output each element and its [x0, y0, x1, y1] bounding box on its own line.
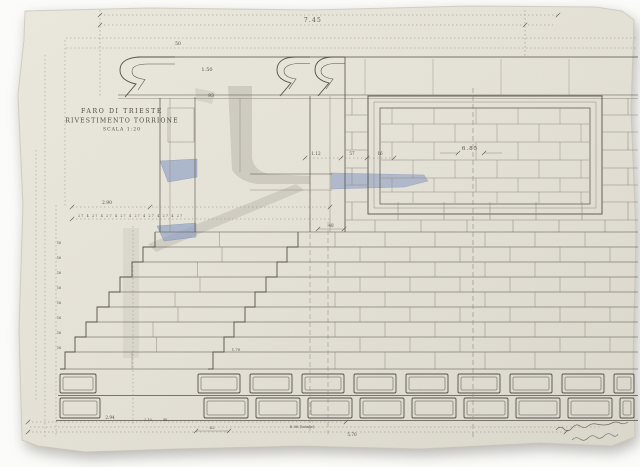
- riser-dim-label: 16: [57, 331, 61, 335]
- dim-step-mid: 1.70: [232, 347, 241, 352]
- dim-total-2: 5.70: [347, 432, 357, 437]
- title-line-3: SCALA 1:20: [103, 127, 141, 133]
- dim-base-c: 48: [163, 418, 167, 422]
- drawing-svg: FARO DI TRIESTE RIVESTIMENTO TORRIONE SC…: [0, 0, 640, 467]
- dim-top-width: 7.45: [304, 17, 322, 24]
- dim-panel-width: 6.85: [462, 146, 478, 152]
- title-line-1: FARO DI TRIESTE: [81, 108, 163, 115]
- dim-shaft: 93: [208, 93, 214, 99]
- dim-ledge-c: 16: [377, 151, 383, 156]
- dim-steps-top: 2.90: [102, 200, 112, 206]
- grey-wash-edge: [123, 228, 139, 358]
- dim-cap-small: 50: [175, 41, 181, 47]
- dim-ledge-b: 57: [349, 151, 355, 156]
- title-line-2: RIVESTIMENTO TORRIONE: [65, 118, 178, 125]
- riser-dim-label: 16: [57, 241, 61, 245]
- dim-cap: 1.50: [201, 67, 212, 73]
- dim-total: 8.96 (totale): [290, 424, 315, 429]
- dim-ledge-a: 1.12: [311, 151, 321, 156]
- riser-dim-label: 16: [57, 271, 61, 275]
- scanned-drawing-page: FARO DI TRIESTE RIVESTIMENTO TORRIONE SC…: [0, 0, 640, 467]
- riser-dim-label: 16: [57, 346, 61, 350]
- dim-base-a: 2.94: [105, 415, 115, 420]
- dim-base-b: 2.10: [144, 418, 152, 422]
- dim-base-d: 62: [209, 425, 215, 430]
- riser-dim-label: 16: [57, 256, 61, 260]
- riser-dim-label: 16: [57, 301, 61, 305]
- dim-tread-row: 27 4 27 4 27 4 27 4 27 4 27 4 27 4 27: [78, 214, 183, 218]
- dim-offset: 48: [328, 223, 334, 228]
- riser-dim-label: 16: [57, 316, 61, 320]
- riser-dim-label: 16: [57, 286, 61, 290]
